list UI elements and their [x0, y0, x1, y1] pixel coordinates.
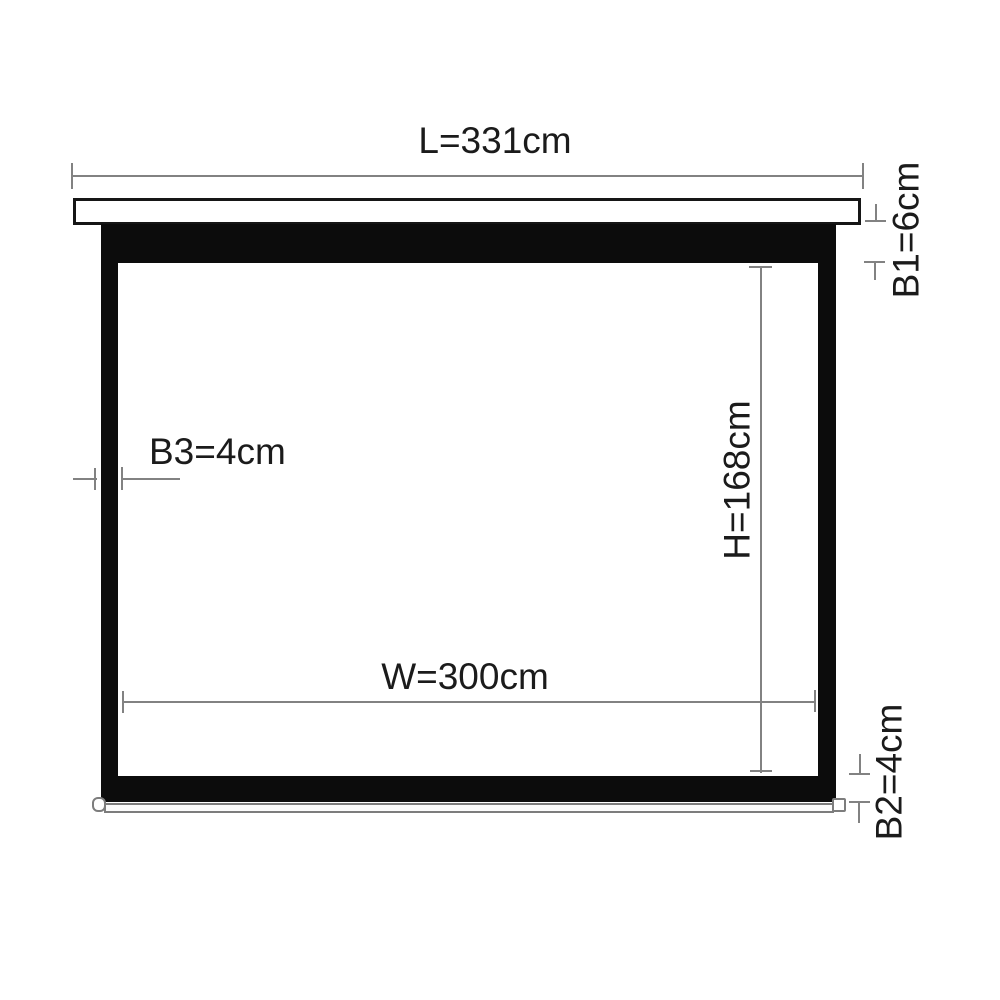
dim-border-bottom-stem-upper: [859, 754, 861, 775]
dim-width-line: [123, 701, 816, 703]
dim-border-top-stem-lower: [874, 263, 876, 280]
dim-width-tick-left: [122, 691, 124, 713]
dim-border-side-tick-right: [121, 467, 123, 490]
dim-length-tick-left: [71, 163, 73, 189]
dim-border-bottom-stem-lower: [858, 803, 860, 823]
viewing-surface: [118, 263, 818, 776]
dim-border-bottom-tick-upper: [849, 773, 870, 775]
bottom-weight-bar: [104, 803, 834, 813]
dim-border-bottom-label: B2=4cm: [871, 704, 910, 841]
dim-border-side-ext-right: [121, 478, 180, 480]
bottom-bar-left-cap: [92, 797, 106, 812]
dim-border-side-tick-left: [94, 468, 96, 490]
dim-height-tick-bottom: [750, 770, 772, 772]
projector-screen-dimension-diagram: L=331cm B1=6cm B3=4cm H=168cm W=300cm: [0, 0, 1000, 1000]
dim-height-line: [760, 267, 762, 773]
dim-border-top-label: B1=6cm: [888, 162, 927, 299]
dim-length-tick-right: [862, 163, 864, 189]
dim-length-label: L=331cm: [368, 122, 622, 161]
dim-height-label: H=168cm: [719, 400, 758, 559]
dim-width-label: W=300cm: [340, 658, 590, 697]
dim-border-top-tick-upper: [865, 220, 886, 222]
dim-height-tick-top: [749, 266, 772, 268]
screen-casing: [73, 198, 861, 225]
bottom-bar-right-cap: [832, 798, 846, 812]
dim-length-line: [72, 175, 864, 177]
dim-border-side-label: B3=4cm: [149, 433, 286, 472]
dim-width-tick-right: [814, 690, 816, 712]
